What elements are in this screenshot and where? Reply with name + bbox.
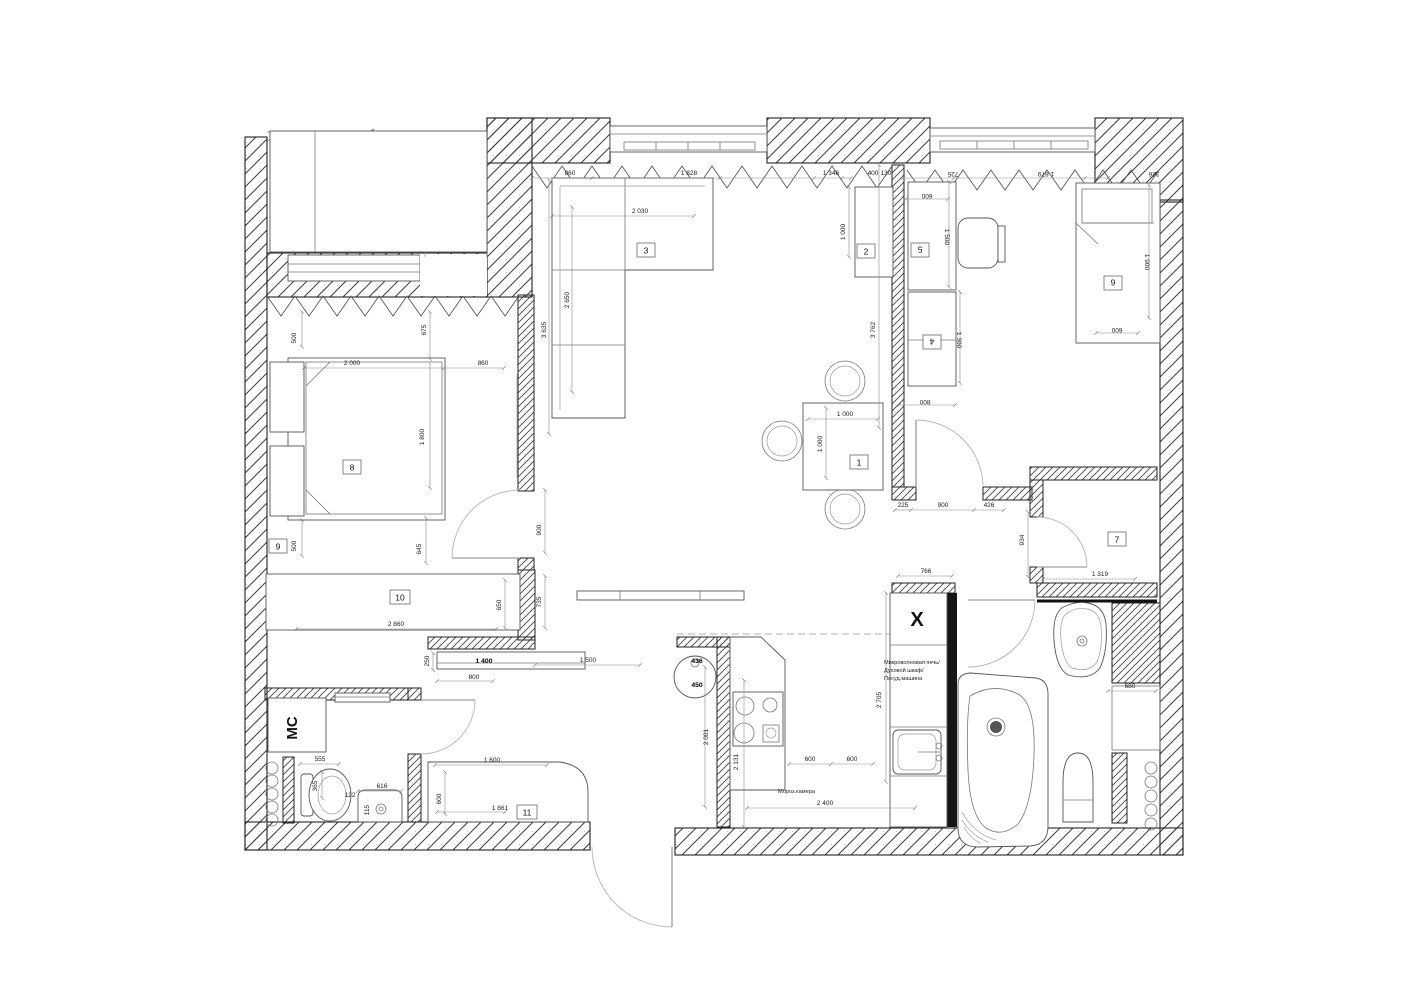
wall-wc-niche (283, 757, 294, 823)
dim-kids-3762: 3 762 (870, 321, 877, 338)
dim-desk-600: 600 (921, 192, 932, 199)
dim-top-860: 860 (565, 170, 576, 177)
svg-text:6: 6 (1110, 278, 1115, 288)
wall-kitchen-bath-black (947, 593, 957, 827)
dim-console-1000: 1 000 (840, 223, 847, 240)
dim-kids-1879: 1 879 (1037, 170, 1054, 177)
dim-kids-800: 800 (919, 398, 930, 405)
dim-k-2400: 2 400 (817, 800, 834, 807)
bathtub (958, 673, 1048, 847)
towel-radiator (1145, 762, 1157, 830)
marker-7: 7 (1108, 532, 1126, 546)
dim-table-1000w: 1 000 (837, 411, 854, 418)
hob (733, 692, 783, 746)
dim-desk-1500: 1 500 (943, 229, 950, 246)
wall-hall-stub (1030, 567, 1043, 583)
wall-corridor-east (518, 570, 535, 640)
dim-door-900: 900 (536, 524, 543, 535)
dim-hall-1500: 1 500 (580, 657, 597, 664)
dim-k-2001: 2 001 (703, 728, 710, 745)
kitchen-stack-line2: Духовой шкаф/ (884, 667, 924, 674)
svg-text:11: 11 (523, 808, 532, 818)
dim-bed6-600: 600 (1111, 326, 1122, 333)
wall-bedroom-stub (518, 558, 534, 570)
dim-wc-122: 122 (345, 792, 356, 799)
marker-5: 5 (911, 243, 929, 257)
floor-plan: 860 1 828 1 346 400 130 725 1 879 326 2 … (0, 0, 1415, 1000)
marker-10: 10 (390, 590, 410, 604)
wall-bedroom-east (518, 295, 534, 491)
dim-top-130: 130 (881, 170, 892, 177)
wall-wc-east (408, 754, 421, 822)
wc-shelf (335, 693, 390, 702)
dim-cab-1300: 1 300 (955, 332, 962, 349)
dim-sofa-2030: 2 030 (632, 208, 649, 215)
dim-table-1000d: 1 000 (817, 435, 824, 452)
dim-tv-250: 250 (424, 655, 431, 666)
dim-tv-1400: 1 400 (475, 658, 492, 665)
wall-living-kids (892, 165, 904, 487)
wardrobe-11 (428, 762, 588, 822)
dim-sofa-2650: 2 650 (564, 291, 571, 308)
svg-text:1: 1 (857, 458, 862, 468)
dim-top-400: 400 (868, 170, 879, 177)
window-kids (930, 128, 1095, 152)
dim-bed-1800: 1 800 (419, 428, 426, 445)
wall-corridor-band (428, 637, 535, 649)
dim-top-1346: 1 346 (823, 170, 840, 177)
door-bedroom (452, 374, 520, 558)
dim-wc-365: 365 (312, 780, 319, 791)
wall-bath-stub (1112, 753, 1127, 823)
nightstand-bottom (270, 446, 304, 516)
bath-niche (1112, 686, 1160, 750)
wall-left (245, 137, 267, 850)
dim-k-2131: 2 131 (733, 753, 740, 770)
dim-ns-top-500: 500 (291, 332, 298, 343)
dim-lob-426: 426 (984, 502, 995, 509)
dim-wc-555: 555 (315, 756, 326, 763)
dim-bed6-1900: 1 900 (1143, 254, 1150, 271)
bath-basin (1054, 602, 1107, 676)
marker-6: 6 (1104, 276, 1122, 290)
tv-stand-1400 (437, 652, 585, 669)
dim-w10-2860: 2 860 (388, 621, 405, 628)
svg-text:5: 5 (917, 245, 922, 255)
dim-hall7-1319: 1 319 (1092, 571, 1109, 578)
dim-lob-225: 225 (898, 502, 909, 509)
console-2 (855, 187, 893, 277)
wall-bottom-left (245, 822, 590, 850)
marker-3: 3 (637, 243, 655, 257)
nightstand-top (270, 362, 304, 432)
wall-lobby-east (983, 487, 1032, 500)
dim-k-2705: 2 705 (876, 691, 883, 708)
dim-corr-735: 735 (536, 596, 543, 607)
bath-toilet (1063, 753, 1093, 822)
dim-kids-725: 725 (947, 170, 958, 177)
svg-text:8: 8 (350, 463, 355, 473)
svg-text:10: 10 (395, 593, 405, 603)
marker-11: 11 (517, 805, 537, 819)
dim-bed-675: 675 (421, 324, 428, 335)
wall-hall-north (1030, 467, 1157, 480)
dim-top-1828: 1 828 (681, 170, 698, 177)
dim-ns-bot-500: 500 (291, 540, 298, 551)
zigzag-bedroom (267, 296, 519, 316)
door-bathroom (968, 600, 1035, 667)
svg-text:3: 3 (644, 246, 649, 256)
freezer-label: Мороз.камера (778, 789, 816, 795)
dim-lob-934: 934 (1019, 534, 1026, 545)
door-living-lobby (916, 420, 983, 487)
dim-bed-860: 860 (478, 360, 489, 367)
duct-shaft (1112, 603, 1160, 683)
washer-label: МС (284, 716, 301, 739)
wall-niche-766 (892, 583, 955, 593)
dim-lob-900: 900 (938, 502, 949, 509)
dim-k-766: 766 (921, 568, 932, 575)
tub-drain (990, 721, 1002, 733)
door-hall7 (1037, 517, 1087, 567)
wall-lobby-west (892, 487, 916, 500)
wall-right (1160, 200, 1183, 855)
wall-hall-pier (1030, 480, 1043, 517)
dim-kids-326: 326 (1148, 170, 1159, 177)
wall-bottom-right (675, 828, 1183, 855)
svg-text:7: 7 (1115, 535, 1120, 545)
wall-top-left (487, 118, 610, 163)
kitchen-stack-line1: Микроволновая печь/ (884, 660, 940, 666)
dim-wc-115: 115 (364, 804, 371, 815)
wc-radiator (266, 762, 278, 826)
svg-text:9: 9 (276, 542, 281, 552)
dim-bed-645: 645 (416, 543, 423, 554)
dim-tv-800: 800 (469, 674, 480, 681)
door-wc (421, 700, 475, 754)
dim-w11-1600: 1 600 (484, 757, 501, 764)
fridge-label: X (910, 609, 924, 631)
dim-w11-1861: 1 861 (492, 805, 509, 812)
door-entrance (592, 847, 672, 927)
wall-kitchen-west (717, 637, 730, 827)
dim-bath-680: 680 (1125, 683, 1136, 690)
dim-wc-616: 616 (377, 783, 388, 790)
marker-9: 9 (269, 539, 287, 553)
marker-8: 8 (343, 460, 361, 474)
dim-living-3635: 3 635 (541, 321, 548, 338)
wall-top-mid (767, 118, 930, 163)
dim-w11-600: 600 (436, 793, 443, 804)
desk-chair (958, 218, 998, 268)
balcony-storage (270, 131, 487, 252)
wall-hall-south (1037, 583, 1157, 597)
marker-1: 1 (850, 455, 868, 469)
tv-stand-living (577, 591, 744, 600)
dim-bed-2000: 2 000 (344, 360, 361, 367)
dim-table-450: 450 (691, 682, 703, 689)
svg-text:2: 2 (864, 247, 869, 257)
wc-toilet (301, 769, 351, 821)
wall-wc-jamb (408, 688, 421, 700)
kitchen-stack-line3: Посуд.машина (884, 676, 923, 682)
window-living (610, 126, 767, 152)
dim-w10-650: 650 (496, 599, 503, 610)
marker-4: 4 (923, 335, 941, 349)
dim-table-436: 436 (691, 658, 703, 665)
svg-text:4: 4 (929, 337, 934, 347)
marker-2: 2 (857, 244, 875, 258)
kitchen-sink (893, 730, 942, 774)
dim-k-600a: 600 (805, 756, 816, 763)
dim-k-600b: 600 (847, 756, 858, 763)
